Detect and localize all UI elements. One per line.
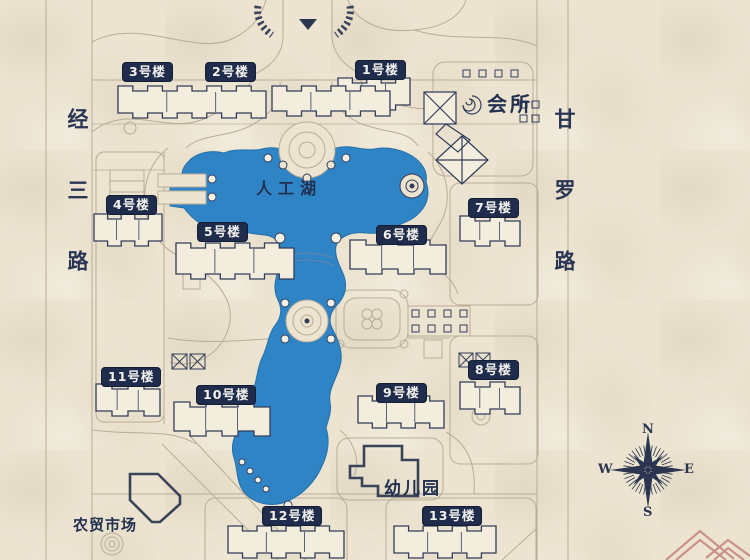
compass-east-label: E [684,462,694,477]
building-label-5[interactable]: 5号楼 [197,222,248,242]
compass-west-label: W [598,462,613,477]
compass-north-label: N [642,422,654,437]
building-label-9[interactable]: 9号楼 [376,383,427,403]
kindergarten-label: 幼儿园 [384,474,441,499]
building-label-6[interactable]: 6号楼 [376,225,427,245]
compass-south-label: S [643,505,652,520]
building-label-11[interactable]: 11号楼 [101,367,161,387]
building-label-8[interactable]: 8号楼 [468,360,519,380]
building-label-7[interactable]: 7号楼 [468,198,519,218]
road-label-right: 甘罗路 [549,108,579,321]
building-label-3[interactable]: 3号楼 [122,62,173,82]
building-label-1[interactable]: 1号楼 [355,60,406,80]
lake-label: 人工湖 [256,175,322,199]
clubhouse-label: 会所 [487,88,533,117]
road-label-left: 经三路 [62,108,92,321]
building-label-2[interactable]: 2号楼 [205,62,256,82]
label-overlay: 经三路 甘罗路 人工湖 会所 幼儿园 农贸市场 1号楼 2号楼 3号楼 4号楼 … [0,0,750,560]
building-label-12[interactable]: 12号楼 [262,506,322,526]
building-label-13[interactable]: 13号楼 [422,506,482,526]
building-label-10[interactable]: 10号楼 [196,385,256,405]
site-plan: 经三路 甘罗路 人工湖 会所 幼儿园 农贸市场 1号楼 2号楼 3号楼 4号楼 … [0,0,750,560]
market-label: 农贸市场 [73,514,137,535]
building-label-4[interactable]: 4号楼 [106,195,157,215]
